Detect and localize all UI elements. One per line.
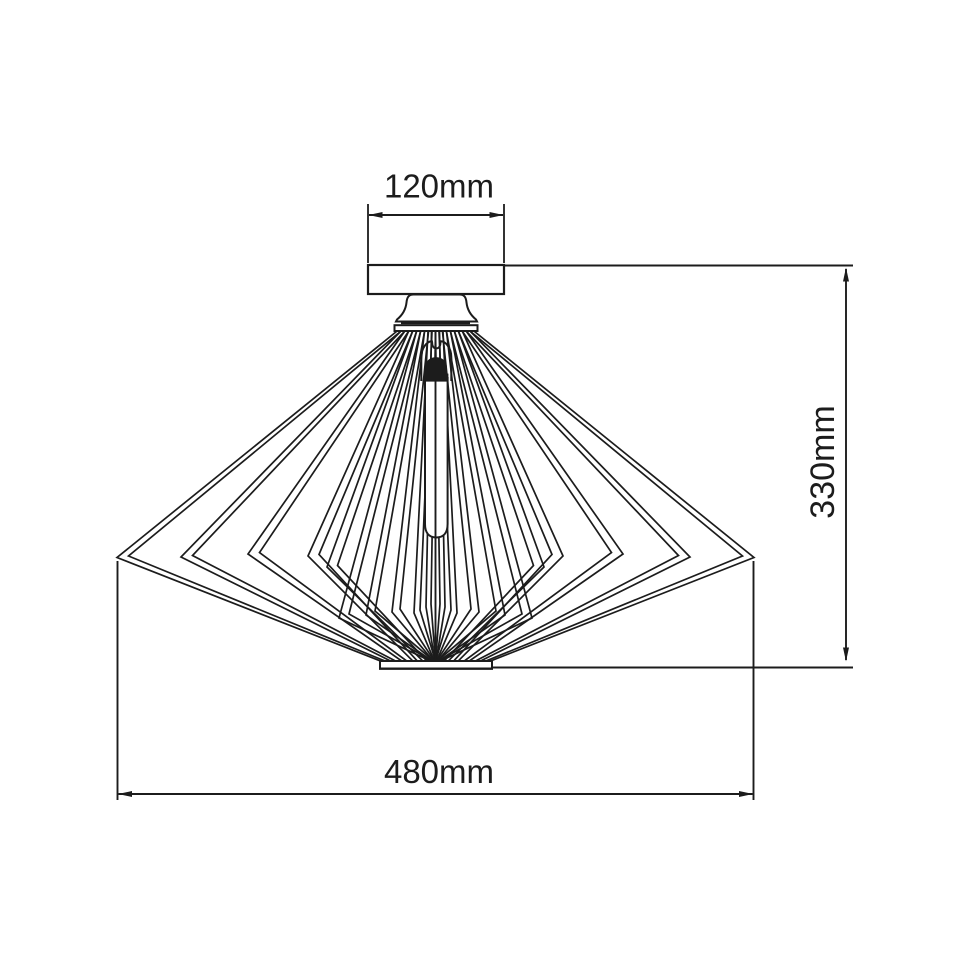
svg-text:120mm: 120mm [384, 168, 494, 205]
svg-text:480mm: 480mm [384, 753, 494, 790]
svg-text:330mm: 330mm [804, 405, 842, 518]
